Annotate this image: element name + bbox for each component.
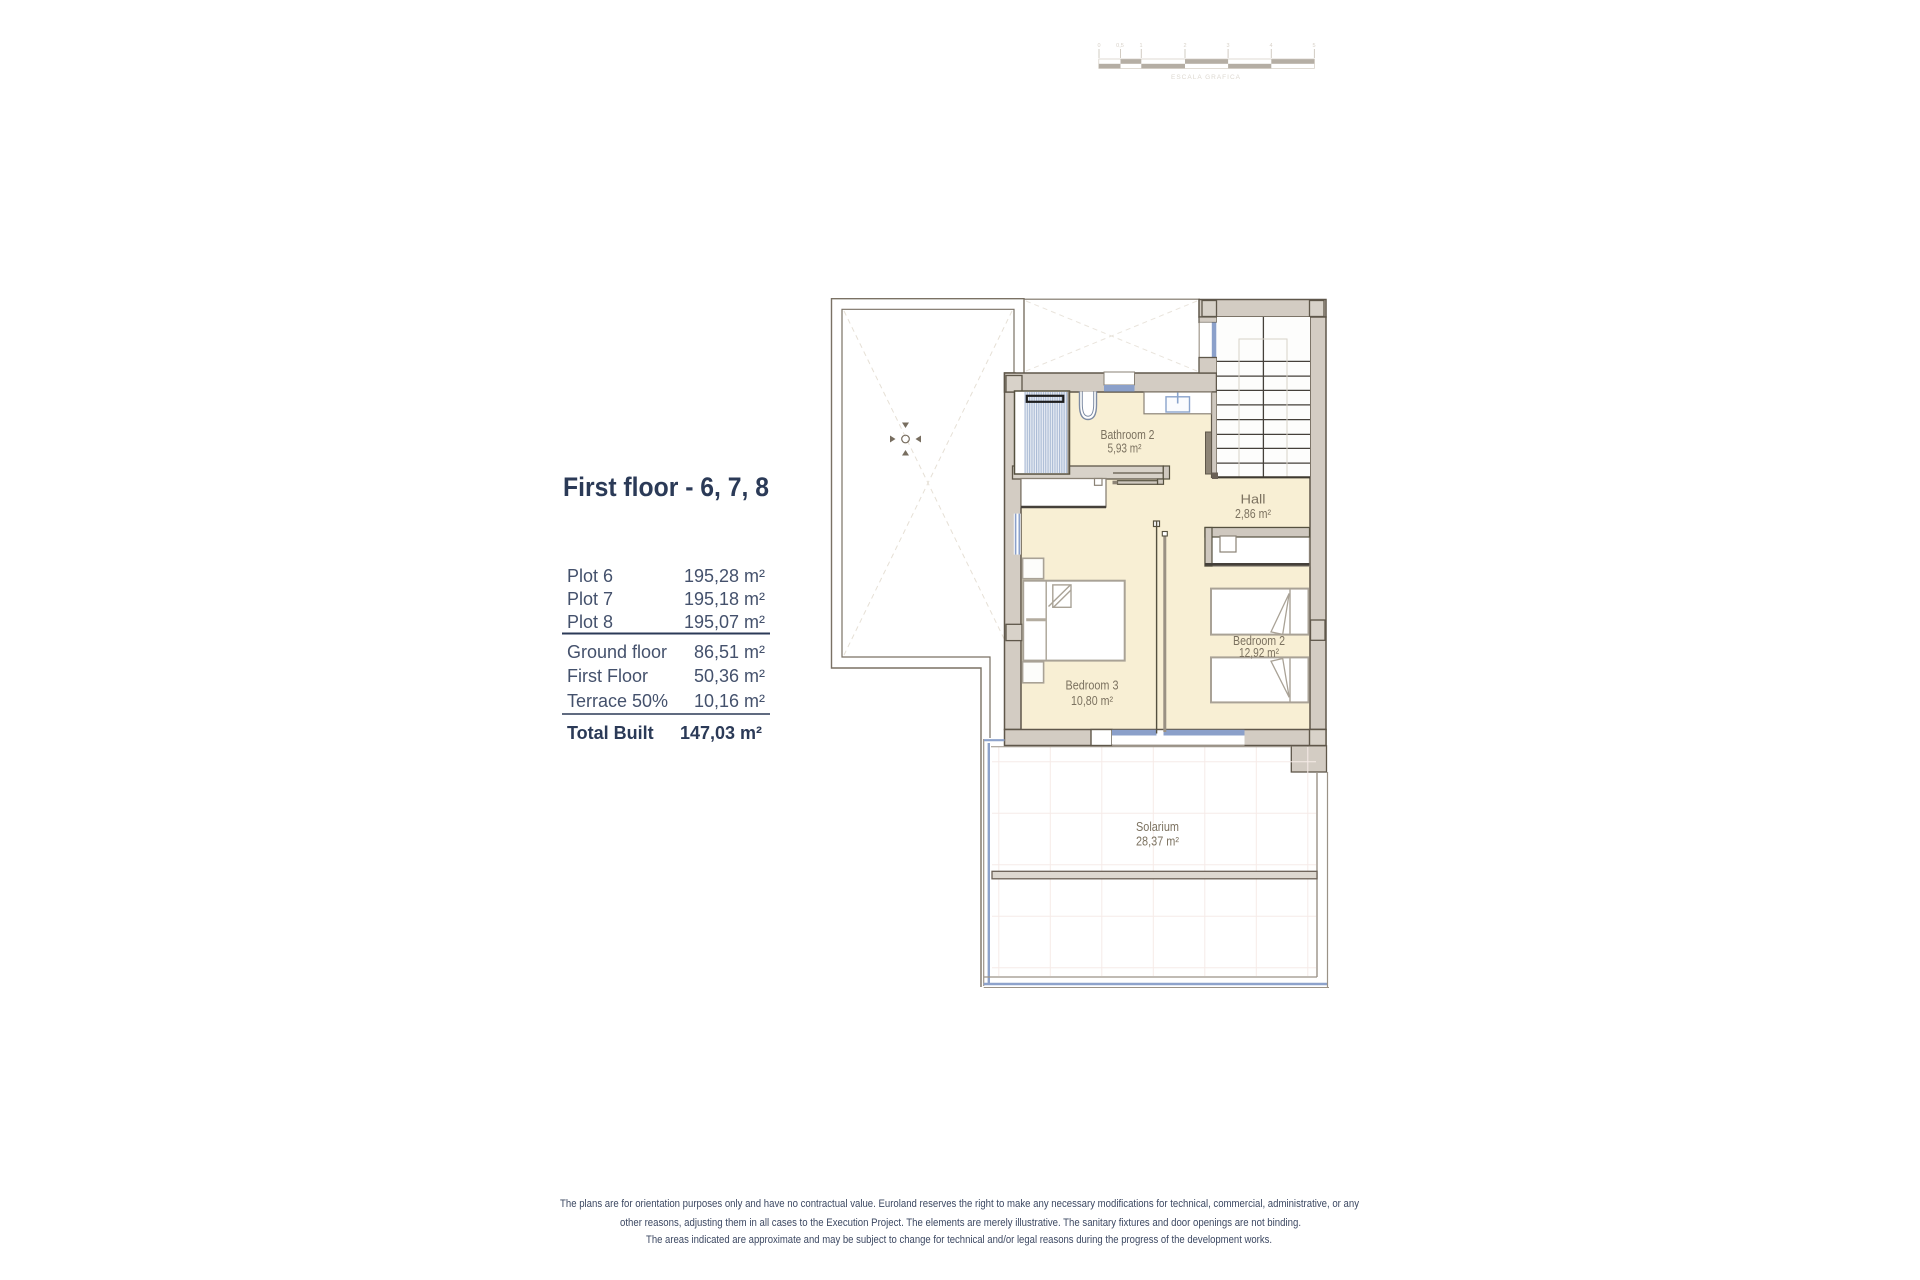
svg-text:Ground floor: Ground floor [567, 642, 667, 662]
svg-text:10,80 m²: 10,80 m² [1071, 694, 1113, 708]
svg-text:Plot 7: Plot 7 [567, 589, 613, 609]
svg-text:2,86 m²: 2,86 m² [1235, 507, 1271, 521]
svg-text:First floor - 6, 7, 8: First floor - 6, 7, 8 [563, 472, 769, 502]
svg-text:Bathroom 2: Bathroom 2 [1101, 428, 1155, 442]
svg-text:28,37 m²: 28,37 m² [1136, 835, 1179, 849]
svg-text:10,16 m²: 10,16 m² [694, 691, 765, 711]
svg-text:2: 2 [1183, 43, 1186, 49]
svg-text:3: 3 [1226, 43, 1229, 49]
svg-text:Hall: Hall [1241, 493, 1266, 507]
svg-text:195,18 m²: 195,18 m² [684, 589, 765, 609]
svg-text:Solarium: Solarium [1136, 820, 1179, 834]
svg-text:First Floor: First Floor [567, 666, 648, 686]
svg-text:50,36 m²: 50,36 m² [694, 666, 765, 686]
svg-text:195,07 m²: 195,07 m² [684, 612, 765, 632]
svg-text:195,28 m²: 195,28 m² [684, 566, 765, 586]
svg-text:Plot 8: Plot 8 [567, 612, 613, 632]
svg-text:12,92 m²: 12,92 m² [1239, 646, 1279, 660]
svg-text:Terrace 50%: Terrace 50% [567, 691, 668, 711]
svg-text:86,51 m²: 86,51 m² [694, 642, 765, 662]
svg-text:1: 1 [1139, 43, 1142, 49]
svg-text:Bedroom 3: Bedroom 3 [1066, 679, 1119, 693]
svg-text:The plans are for orientation: The plans are for orientation purposes o… [560, 1198, 1360, 1210]
svg-text:4: 4 [1269, 43, 1272, 49]
svg-text:The areas indicated are approx: The areas indicated are approximate and … [646, 1234, 1272, 1246]
svg-text:0: 0 [1097, 43, 1100, 49]
svg-text:Total Built: Total Built [567, 723, 654, 743]
svg-text:0,5: 0,5 [1116, 43, 1124, 49]
svg-text:5: 5 [1312, 43, 1315, 49]
svg-text:other reasons, adjusting them: other reasons, adjusting them in all cas… [620, 1217, 1301, 1229]
svg-text:Plot 6: Plot 6 [567, 566, 613, 586]
svg-text:147,03 m²: 147,03 m² [680, 723, 762, 743]
svg-text:ESCALA GRAFICA: ESCALA GRAFICA [1171, 74, 1241, 81]
svg-text:5,93 m²: 5,93 m² [1108, 442, 1142, 456]
